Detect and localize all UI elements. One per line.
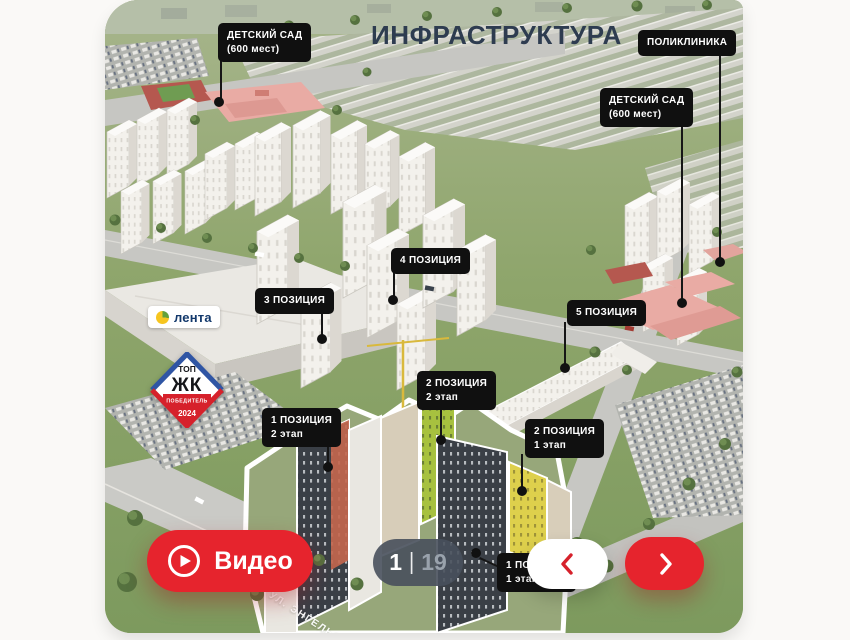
label-polyclinic: ПОЛИКЛИНИКА: [638, 30, 736, 56]
label-line: ДЕТСКИЙ САД: [609, 94, 684, 108]
label-position-3: 3 ПОЗИЦИЯ: [255, 288, 334, 314]
badge-year-text: 2024: [178, 409, 196, 418]
connector-line: [681, 124, 683, 300]
slide-separator: |: [409, 549, 414, 575]
connector-dot: [517, 486, 527, 496]
label-line: 3 ПОЗИЦИЯ: [264, 294, 325, 308]
masterplan-image: ИНФРАСТРУКТУРА ДЕТСКИЙ САД (600 мест) ПО…: [105, 0, 743, 633]
connector-dot: [214, 97, 224, 107]
connector-dot: [715, 257, 725, 267]
label-position-1-stage-2: 1 ПОЗИЦИЯ 2 этап: [262, 408, 341, 447]
play-circle-icon: [167, 544, 201, 578]
award-badge-diamond: ТОП ЖК ПОБЕДИТЕЛЬ 2024: [150, 352, 224, 428]
lenta-logo-text: лента: [174, 310, 212, 325]
label-line: (600 мест): [609, 108, 684, 122]
connector-line: [321, 311, 323, 336]
label-line: 2 ПОЗИЦИЯ: [426, 377, 487, 391]
connector-dot: [560, 363, 570, 373]
badge-ribbon-text: ПОБЕДИТЕЛЬ: [166, 399, 207, 405]
connector-dot: [317, 334, 327, 344]
label-line: ДЕТСКИЙ САД: [227, 29, 302, 43]
badge-top-text: ТОП: [178, 364, 196, 374]
label-line: 2 этап: [426, 391, 487, 405]
lenta-circle-icon: [156, 311, 169, 324]
label-line: 4 ПОЗИЦИЯ: [400, 254, 461, 268]
video-button[interactable]: Видео: [147, 530, 313, 592]
label-line: 1 этап: [534, 439, 595, 453]
label-position-2-stage-1: 2 ПОЗИЦИЯ 1 этап: [525, 419, 604, 458]
connector-dot: [471, 548, 481, 558]
connector-dot: [388, 295, 398, 305]
label-line: 5 ПОЗИЦИЯ: [576, 306, 637, 320]
slide-counter: 1 | 19: [373, 539, 463, 586]
award-badge: ТОП ЖК ПОБЕДИТЕЛЬ 2024: [150, 352, 224, 433]
connector-line: [393, 272, 395, 297]
label-line: 1 ПОЗИЦИЯ: [271, 414, 332, 428]
label-line: (600 мест): [227, 43, 302, 57]
connector-dot: [323, 462, 333, 472]
connector-dot: [677, 298, 687, 308]
gallery-viewer: ИНФРАСТРУКТУРА ДЕТСКИЙ САД (600 мест) ПО…: [0, 0, 850, 640]
connector-line: [440, 406, 442, 437]
label-position-5: 5 ПОЗИЦИЯ: [567, 300, 646, 326]
connector-line: [564, 322, 566, 365]
label-position-2-stage-2: 2 ПОЗИЦИЯ 2 этап: [417, 371, 496, 410]
lenta-store-logo: лента: [148, 306, 220, 328]
video-button-label: Видео: [214, 547, 292, 576]
label-position-4: 4 ПОЗИЦИЯ: [391, 248, 470, 274]
label-line: ПОЛИКЛИНИКА: [647, 36, 727, 50]
chevron-right-icon: [652, 551, 678, 577]
connector-dot: [436, 435, 446, 445]
badge-zhk-text: ЖК: [171, 375, 203, 396]
chevron-left-icon: [555, 551, 581, 577]
page-title: ИНФРАСТРУКТУРА: [371, 20, 622, 51]
prev-slide-button[interactable]: [527, 539, 608, 589]
connector-line: [521, 454, 523, 488]
slide-total: 19: [421, 549, 447, 576]
label-line: 2 ПОЗИЦИЯ: [534, 425, 595, 439]
label-kindergarten-left: ДЕТСКИЙ САД (600 мест): [218, 23, 311, 62]
label-line: 2 этап: [271, 428, 332, 442]
label-kindergarten-right: ДЕТСКИЙ САД (600 мест): [600, 88, 693, 127]
next-slide-button[interactable]: [625, 537, 704, 590]
slide-current: 1: [389, 549, 402, 576]
connector-line: [719, 52, 721, 258]
